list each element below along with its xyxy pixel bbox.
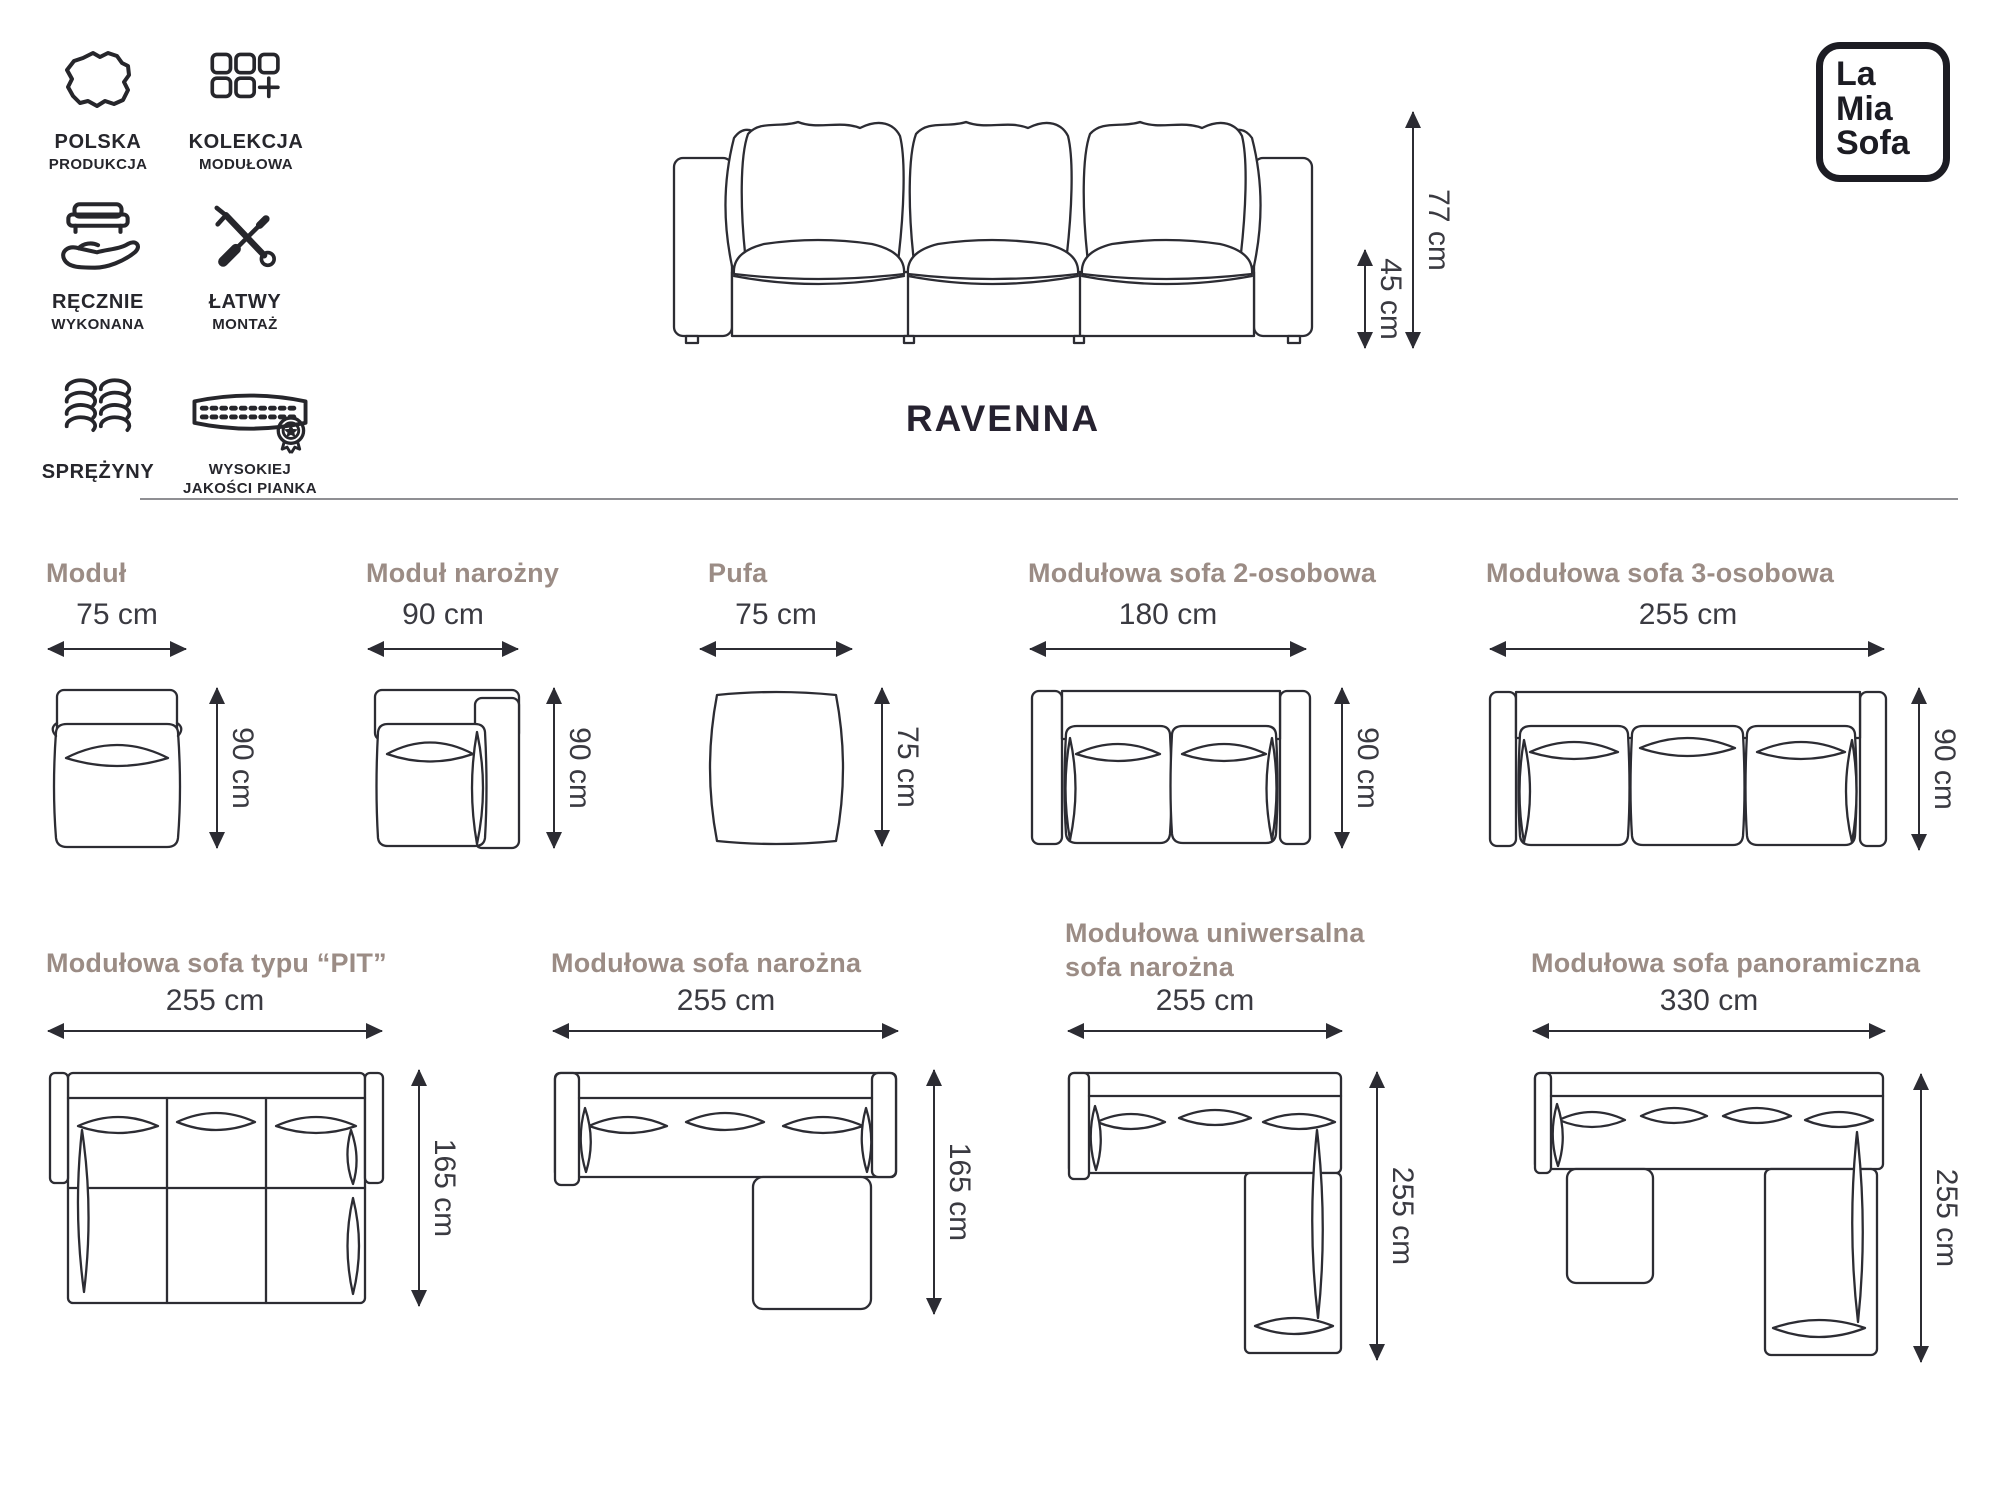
module-width-label: 90 cm — [402, 598, 484, 632]
feature-label: ŁATWY — [170, 291, 320, 314]
module-height-label: 165 cm — [427, 1088, 461, 1288]
height-arrow — [418, 1070, 420, 1306]
total-height-arrow — [1412, 112, 1414, 348]
module-top-view — [48, 1068, 385, 1308]
module-top-view — [48, 686, 186, 852]
module-width-label: 180 cm — [1119, 598, 1217, 632]
module-title: Modułowa sofa panoramiczna — [1531, 948, 1920, 979]
brand-logo: La Mia Sofa — [1816, 42, 1950, 182]
height-arrow — [1341, 688, 1343, 848]
module-width-label: 330 cm — [1660, 984, 1758, 1018]
module-title: Modułowa sofa 2-osobowa — [1028, 558, 1376, 589]
height-arrow — [1918, 688, 1920, 850]
height-arrow — [553, 688, 555, 848]
module-height-label: 75 cm — [890, 667, 924, 867]
width-arrow — [1030, 648, 1306, 650]
module-top-view — [1030, 686, 1312, 850]
product-name: RAVENNA — [838, 398, 1168, 440]
module-top-view — [372, 686, 522, 852]
width-arrow — [1068, 1030, 1342, 1032]
module-top-view — [1488, 686, 1888, 852]
module-title: Moduł narożny — [366, 558, 559, 589]
module-title: Modułowa sofa narożna — [551, 948, 861, 979]
feature-label: RĘCZNIE — [24, 291, 172, 314]
module-top-view — [700, 686, 853, 850]
feature-polska-produkcja: POLSKA PRODUKCJA — [28, 40, 168, 173]
seat-height-label: 45 cm — [1373, 199, 1407, 399]
foam-icon — [186, 378, 314, 454]
sofa-front-view-drawing — [668, 80, 1318, 348]
poland-map-icon — [53, 40, 143, 120]
spec-sheet: POLSKA PRODUKCJA KOLEKCJA MODUŁOWA RĘCZN… — [0, 0, 2000, 1500]
width-arrow — [48, 648, 186, 650]
feature-kolekcja-modulowa: KOLEKCJA MODUŁOWA — [168, 40, 324, 173]
width-arrow — [553, 1030, 898, 1032]
module-width-label: 255 cm — [166, 984, 264, 1018]
width-arrow — [368, 648, 518, 650]
module-title: Moduł — [46, 558, 126, 589]
module-title: Modułowa sofa 3-osobowa — [1486, 558, 1834, 589]
height-arrow — [1920, 1074, 1922, 1362]
feature-wysokiej-jakosci-pianka: WYSOKIEJ JAKOŚCI PIANKA — [162, 378, 338, 497]
modules-grid-icon — [205, 40, 287, 120]
module-title: Pufa — [708, 558, 767, 589]
module-height-label: 165 cm — [942, 1092, 976, 1292]
width-arrow — [48, 1030, 382, 1032]
feature-sublabel: PRODUKCJA — [28, 156, 168, 173]
module-height-label: 90 cm — [225, 668, 259, 868]
module-top-view — [1067, 1068, 1343, 1360]
module-height-label: 255 cm — [1385, 1116, 1419, 1316]
feature-sublabel: JAKOŚCI PIANKA — [162, 480, 338, 497]
handmade-icon — [52, 196, 144, 280]
feature-label: SPRĘŻYNY — [28, 461, 168, 484]
seat-height-arrow — [1364, 250, 1366, 348]
feature-sublabel: MONTAŻ — [170, 316, 320, 333]
module-width-label: 75 cm — [735, 598, 817, 632]
height-arrow — [216, 688, 218, 848]
feature-sprezyny: SPRĘŻYNY — [28, 376, 168, 484]
feature-sublabel: MODUŁOWA — [168, 156, 324, 173]
feature-label: WYSOKIEJ — [162, 461, 338, 478]
width-arrow — [700, 648, 852, 650]
feature-latwy-montaz: ŁATWY MONTAŻ — [170, 196, 320, 333]
module-width-label: 255 cm — [1156, 984, 1254, 1018]
height-arrow — [933, 1070, 935, 1314]
feature-label: KOLEKCJA — [168, 131, 324, 154]
width-arrow — [1490, 648, 1884, 650]
logo-line: Mia — [1836, 92, 1943, 127]
width-arrow — [1533, 1030, 1885, 1032]
module-width-label: 255 cm — [677, 984, 775, 1018]
module-height-label: 90 cm — [562, 668, 596, 868]
module-height-label: 90 cm — [1350, 668, 1384, 868]
total-height-label: 77 cm — [1421, 130, 1455, 330]
feature-label: POLSKA — [28, 131, 168, 154]
module-height-label: 255 cm — [1929, 1118, 1963, 1318]
height-arrow — [881, 688, 883, 846]
module-title: Modułowa uniwersalna sofa narożna — [1065, 916, 1395, 984]
module-top-view — [1533, 1068, 1885, 1362]
section-divider — [140, 498, 1958, 500]
module-title: Modułowa sofa typu “PIT” — [46, 948, 387, 979]
module-width-label: 75 cm — [76, 598, 158, 632]
springs-icon — [55, 376, 141, 450]
tools-icon — [204, 196, 286, 280]
feature-recznie-wykonana: RĘCZNIE WYKONANA — [24, 196, 172, 333]
module-height-label: 90 cm — [1927, 669, 1961, 869]
logo-line: Sofa — [1836, 126, 1943, 161]
feature-sublabel: WYKONANA — [24, 316, 172, 333]
logo-line: La — [1836, 57, 1943, 92]
height-arrow — [1376, 1072, 1378, 1360]
module-width-label: 255 cm — [1639, 598, 1737, 632]
module-top-view — [553, 1068, 898, 1316]
